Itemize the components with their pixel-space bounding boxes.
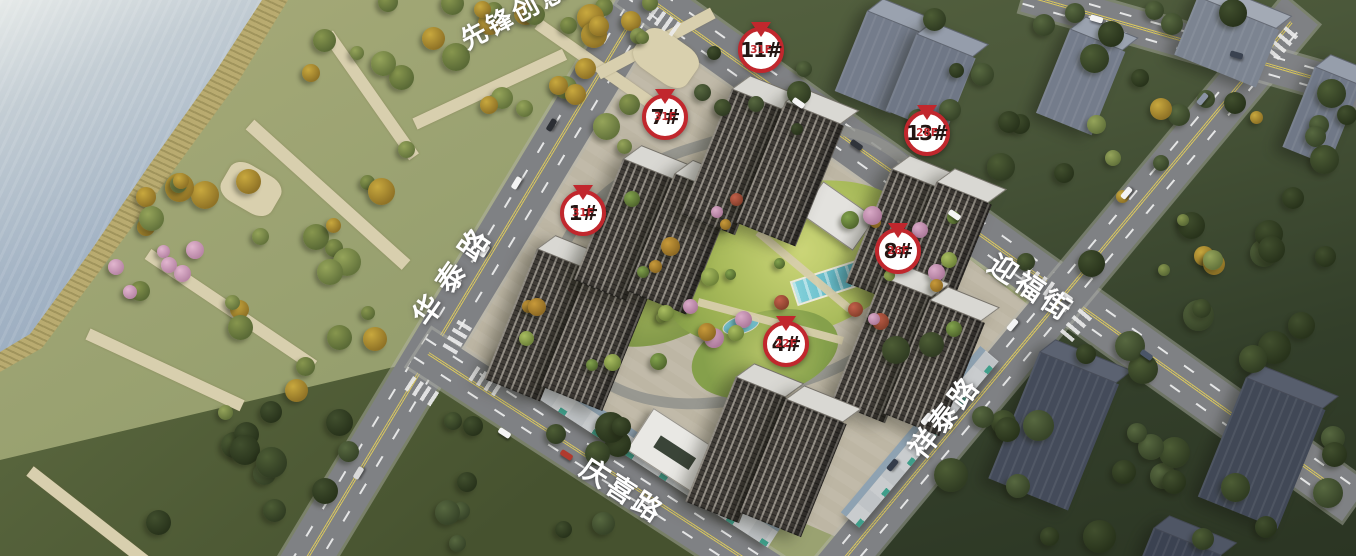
tree <box>252 228 269 245</box>
tree <box>941 252 957 268</box>
tree <box>698 323 716 341</box>
tree <box>1087 115 1106 134</box>
tree <box>995 417 1020 442</box>
rooftop-unit <box>633 152 643 159</box>
tree <box>285 379 308 402</box>
tree <box>350 46 364 60</box>
tree <box>296 357 315 376</box>
tree <box>863 206 882 225</box>
tree <box>1219 0 1247 27</box>
tree <box>1337 105 1356 125</box>
pin-floor-count: 22F <box>775 339 797 350</box>
tree <box>1192 299 1211 318</box>
car <box>497 427 511 439</box>
tree <box>720 219 731 230</box>
site-aerial-map: 先锋创意 华泰路 庆喜路 祥泰路 迎福街 1# 31F 4# 22F 7# 31… <box>0 0 1356 556</box>
rooftop-unit <box>746 370 756 377</box>
tree <box>555 521 572 538</box>
pin-pointer <box>917 105 937 120</box>
tree <box>658 305 674 321</box>
rooftop-unit <box>547 242 557 249</box>
tree <box>701 268 719 286</box>
tree <box>714 99 731 116</box>
tree <box>592 512 615 535</box>
rooftop-unit <box>746 370 756 377</box>
tree <box>398 141 415 158</box>
context-building <box>1141 512 1230 556</box>
tree <box>694 84 711 101</box>
tree <box>1315 246 1336 267</box>
rooftop-unit <box>633 152 643 159</box>
tree <box>998 111 1020 133</box>
rooftop-unit <box>742 82 752 89</box>
pin-pointer <box>573 185 593 200</box>
tree <box>560 17 577 34</box>
tree <box>1258 236 1285 263</box>
tree <box>707 46 721 60</box>
tree <box>650 353 667 370</box>
tree <box>1115 331 1145 361</box>
car <box>1006 318 1019 332</box>
tree <box>987 153 1015 181</box>
tree <box>774 295 789 310</box>
tree <box>589 16 609 36</box>
tree <box>1159 437 1190 468</box>
tree <box>256 447 287 478</box>
tree <box>228 315 253 340</box>
tree <box>604 354 621 371</box>
tree <box>1054 163 1074 183</box>
tree <box>1317 79 1346 108</box>
tree <box>661 237 680 256</box>
tree <box>1322 442 1347 467</box>
car <box>546 118 558 132</box>
tree <box>619 94 640 115</box>
courtyard-path <box>755 229 852 312</box>
tree <box>575 58 596 79</box>
tree <box>435 500 460 525</box>
pin-floor-count: 31F <box>750 45 772 56</box>
tree <box>1305 126 1326 147</box>
tree <box>919 332 944 357</box>
tree <box>1145 1 1164 20</box>
rooftop-unit <box>796 392 806 399</box>
tree <box>796 61 812 77</box>
tree <box>1221 473 1250 502</box>
tree <box>326 409 353 436</box>
tree <box>1127 423 1147 443</box>
tree <box>1150 98 1172 120</box>
tree <box>303 224 329 250</box>
tree <box>108 259 124 275</box>
tree <box>711 206 723 218</box>
tree <box>868 313 880 325</box>
tree <box>186 241 204 259</box>
tree <box>923 8 946 31</box>
tree <box>225 295 240 310</box>
tree <box>302 64 320 82</box>
tree <box>971 63 994 86</box>
tree <box>649 260 662 273</box>
tree <box>312 478 338 504</box>
tree <box>1203 250 1223 270</box>
tree <box>1153 155 1169 171</box>
rooftop-unit <box>796 392 806 399</box>
tree <box>368 178 395 205</box>
pin-pointer <box>655 89 675 104</box>
tree <box>546 424 566 444</box>
park-path <box>412 49 567 130</box>
tree <box>480 96 498 114</box>
tree <box>549 76 568 95</box>
tree <box>463 416 483 436</box>
rooftop-unit <box>946 175 956 182</box>
tree <box>1098 21 1124 47</box>
tree <box>683 299 698 314</box>
tree <box>371 51 396 76</box>
car <box>849 139 863 151</box>
car <box>886 458 899 472</box>
tree <box>1255 516 1277 538</box>
tree <box>1033 14 1055 36</box>
tree <box>519 331 534 346</box>
pin-pointer <box>888 223 908 238</box>
tree <box>1112 460 1136 484</box>
rooftop-unit <box>939 293 949 300</box>
decor-layer <box>0 0 1356 556</box>
tree <box>313 29 336 52</box>
tree <box>136 187 156 207</box>
pin-floor-count: 26F <box>887 246 909 257</box>
car <box>511 176 523 190</box>
tree <box>1006 474 1030 498</box>
tree <box>636 31 649 44</box>
tree <box>1282 187 1304 209</box>
tree <box>327 325 352 350</box>
tree <box>565 84 586 105</box>
tree <box>139 206 164 231</box>
tree <box>934 458 968 492</box>
tree <box>612 417 631 436</box>
tree <box>1192 528 1214 550</box>
tree <box>260 401 282 423</box>
tree <box>1313 478 1343 508</box>
tree <box>1224 92 1246 114</box>
tree <box>848 302 863 317</box>
car <box>353 466 365 480</box>
tree <box>236 169 261 194</box>
pin-pointer <box>751 22 771 37</box>
tree <box>624 191 640 207</box>
pin-floor-count: 28F <box>916 128 938 139</box>
crosswalk <box>442 317 473 354</box>
tree <box>422 27 445 50</box>
tree <box>1158 264 1170 276</box>
pin-pointer <box>776 316 796 331</box>
tree <box>1023 410 1054 441</box>
tree <box>972 406 994 428</box>
rooftop-unit <box>901 162 911 169</box>
tree <box>774 258 785 269</box>
tree <box>1162 470 1186 494</box>
tree <box>728 325 744 341</box>
tree <box>263 499 286 522</box>
pin-floor-count: 31F <box>572 208 594 219</box>
tree <box>1288 312 1315 339</box>
tree <box>457 472 477 492</box>
tree <box>1161 13 1183 35</box>
tree <box>191 181 219 209</box>
tree <box>593 113 620 140</box>
tree <box>1177 214 1189 226</box>
tree <box>949 63 964 78</box>
tree <box>946 321 962 337</box>
tree <box>586 359 598 371</box>
tree <box>637 266 649 278</box>
tree <box>528 298 546 316</box>
tree <box>449 535 466 552</box>
tree <box>730 193 743 206</box>
tree <box>146 510 171 535</box>
tree <box>378 0 398 12</box>
tree <box>441 0 464 15</box>
tree <box>218 405 233 420</box>
rooftop-unit <box>684 167 694 174</box>
park-path <box>85 329 244 412</box>
tree <box>1239 345 1267 373</box>
tree <box>173 173 189 189</box>
tree <box>1080 44 1109 73</box>
tree <box>1078 250 1105 277</box>
tree <box>516 100 533 117</box>
tree <box>338 441 359 462</box>
tree <box>361 306 375 320</box>
tree <box>841 211 859 229</box>
tree <box>930 279 943 292</box>
context-building <box>1198 361 1332 529</box>
tree <box>1250 111 1263 124</box>
tree <box>882 336 910 364</box>
tree <box>1131 69 1149 87</box>
pin-floor-count: 31F <box>654 112 676 123</box>
rooftop-unit <box>939 293 949 300</box>
tree <box>748 96 764 112</box>
tree <box>1040 527 1059 546</box>
car <box>559 449 573 461</box>
tree <box>444 412 462 430</box>
tree <box>1105 150 1121 166</box>
rooftop-unit <box>684 167 694 174</box>
rooftop-unit <box>742 82 752 89</box>
tree <box>1310 145 1339 174</box>
tree <box>1076 344 1096 364</box>
rooftop-unit <box>946 175 956 182</box>
tree <box>617 139 632 154</box>
tree <box>317 259 343 285</box>
tree <box>363 327 387 351</box>
tree <box>123 285 137 299</box>
tree <box>326 218 341 233</box>
tree <box>791 123 803 135</box>
tree <box>725 269 736 280</box>
tree <box>1065 3 1085 23</box>
rooftop-unit <box>547 242 557 249</box>
rooftop-unit <box>901 162 911 169</box>
crosswalk <box>404 376 441 408</box>
tree <box>1083 520 1116 553</box>
tree <box>161 257 177 273</box>
